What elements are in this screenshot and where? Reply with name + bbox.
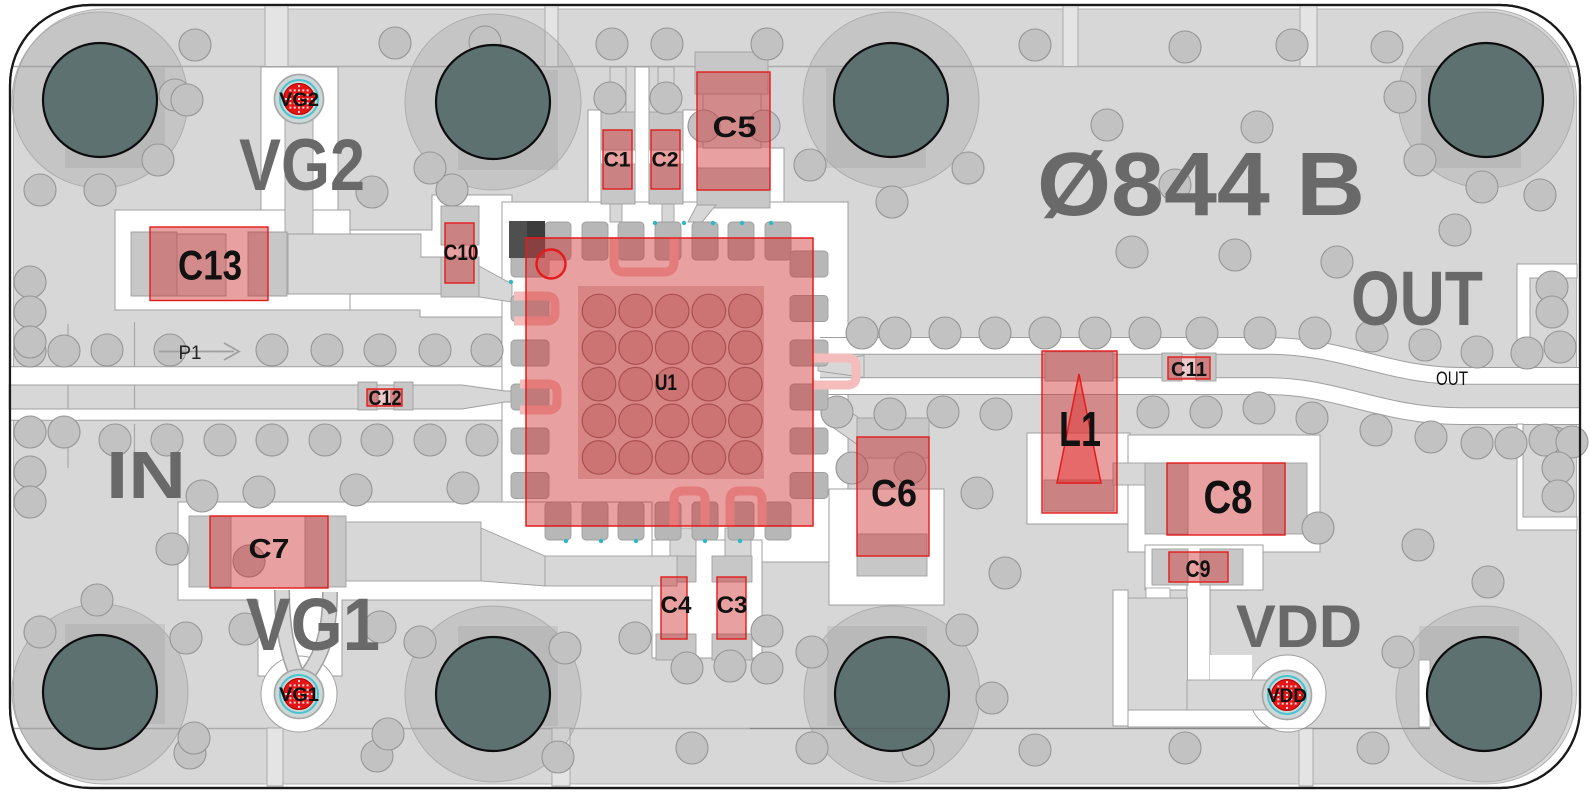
svg-text:Ø844 B: Ø844 B	[1037, 135, 1365, 235]
svg-text:C5: C5	[713, 111, 757, 144]
svg-text:VDD: VDD	[1236, 593, 1362, 660]
svg-text:C2: C2	[652, 149, 679, 172]
svg-text:C12: C12	[369, 387, 402, 410]
svg-text:L1: L1	[1059, 403, 1101, 457]
svg-text:VG2: VG2	[279, 90, 319, 111]
svg-text:C8: C8	[1204, 471, 1253, 523]
svg-text:VDD: VDD	[1267, 686, 1307, 707]
svg-text:C10: C10	[444, 240, 479, 265]
svg-text:OUT: OUT	[1351, 256, 1483, 342]
svg-text:C11: C11	[1171, 359, 1207, 381]
svg-text:P1: P1	[179, 343, 202, 364]
svg-text:C7: C7	[249, 533, 290, 564]
svg-text:OUT: OUT	[1436, 369, 1468, 390]
svg-text:VG1: VG1	[279, 685, 319, 706]
svg-text:C4: C4	[661, 592, 693, 619]
svg-text:C6: C6	[871, 473, 917, 515]
svg-text:C9: C9	[1186, 556, 1211, 583]
svg-text:C13: C13	[178, 242, 242, 289]
svg-text:IN: IN	[106, 438, 186, 513]
svg-text:VG1: VG1	[246, 583, 380, 666]
svg-text:C1: C1	[604, 149, 631, 172]
svg-text:VG2: VG2	[239, 125, 365, 206]
svg-text:U1: U1	[655, 370, 677, 395]
svg-text:C3: C3	[717, 592, 748, 619]
